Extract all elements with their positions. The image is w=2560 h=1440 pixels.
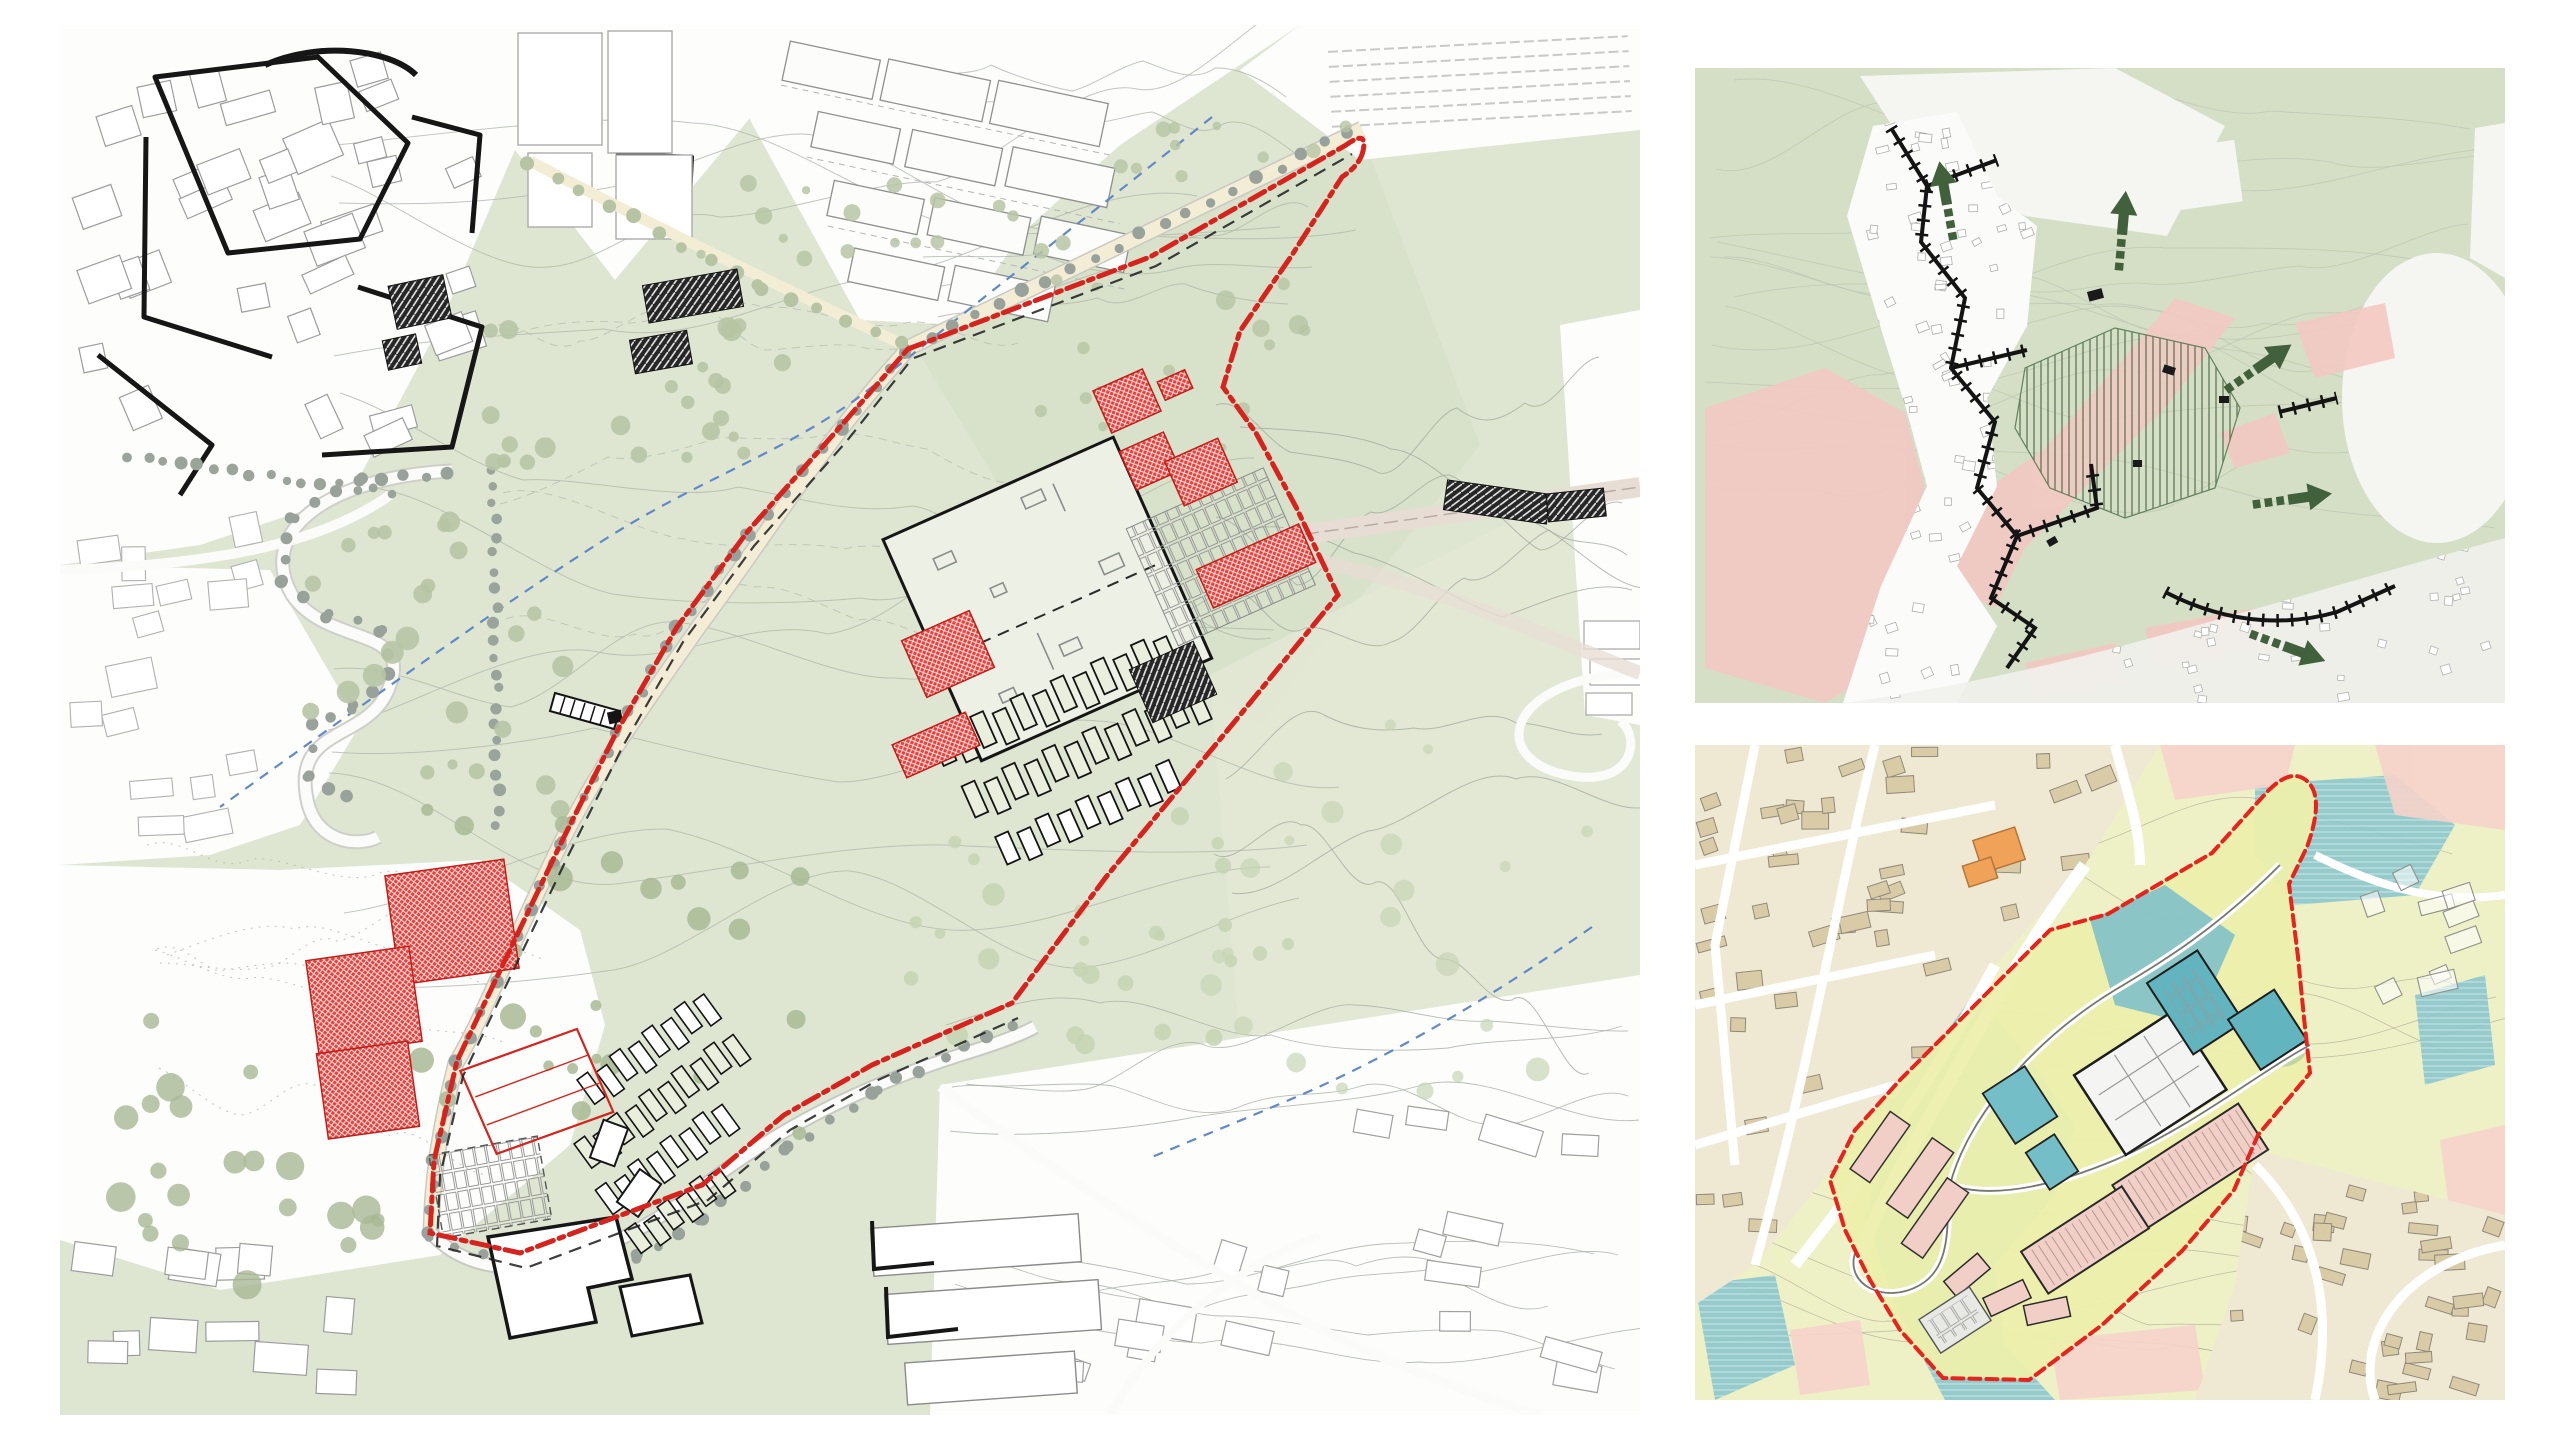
context-panel <box>1695 68 2505 703</box>
masterplan-panel <box>60 25 1640 1415</box>
zoning-strategy-map <box>1695 745 2505 1400</box>
proposed-building-large <box>306 946 422 1056</box>
territorial-strategy-map <box>1695 68 2505 703</box>
presentation-board <box>0 0 2560 1440</box>
site-masterplan-map <box>60 25 1640 1415</box>
proposed-building-large <box>316 1041 419 1139</box>
zoning-panel <box>1695 745 2505 1400</box>
